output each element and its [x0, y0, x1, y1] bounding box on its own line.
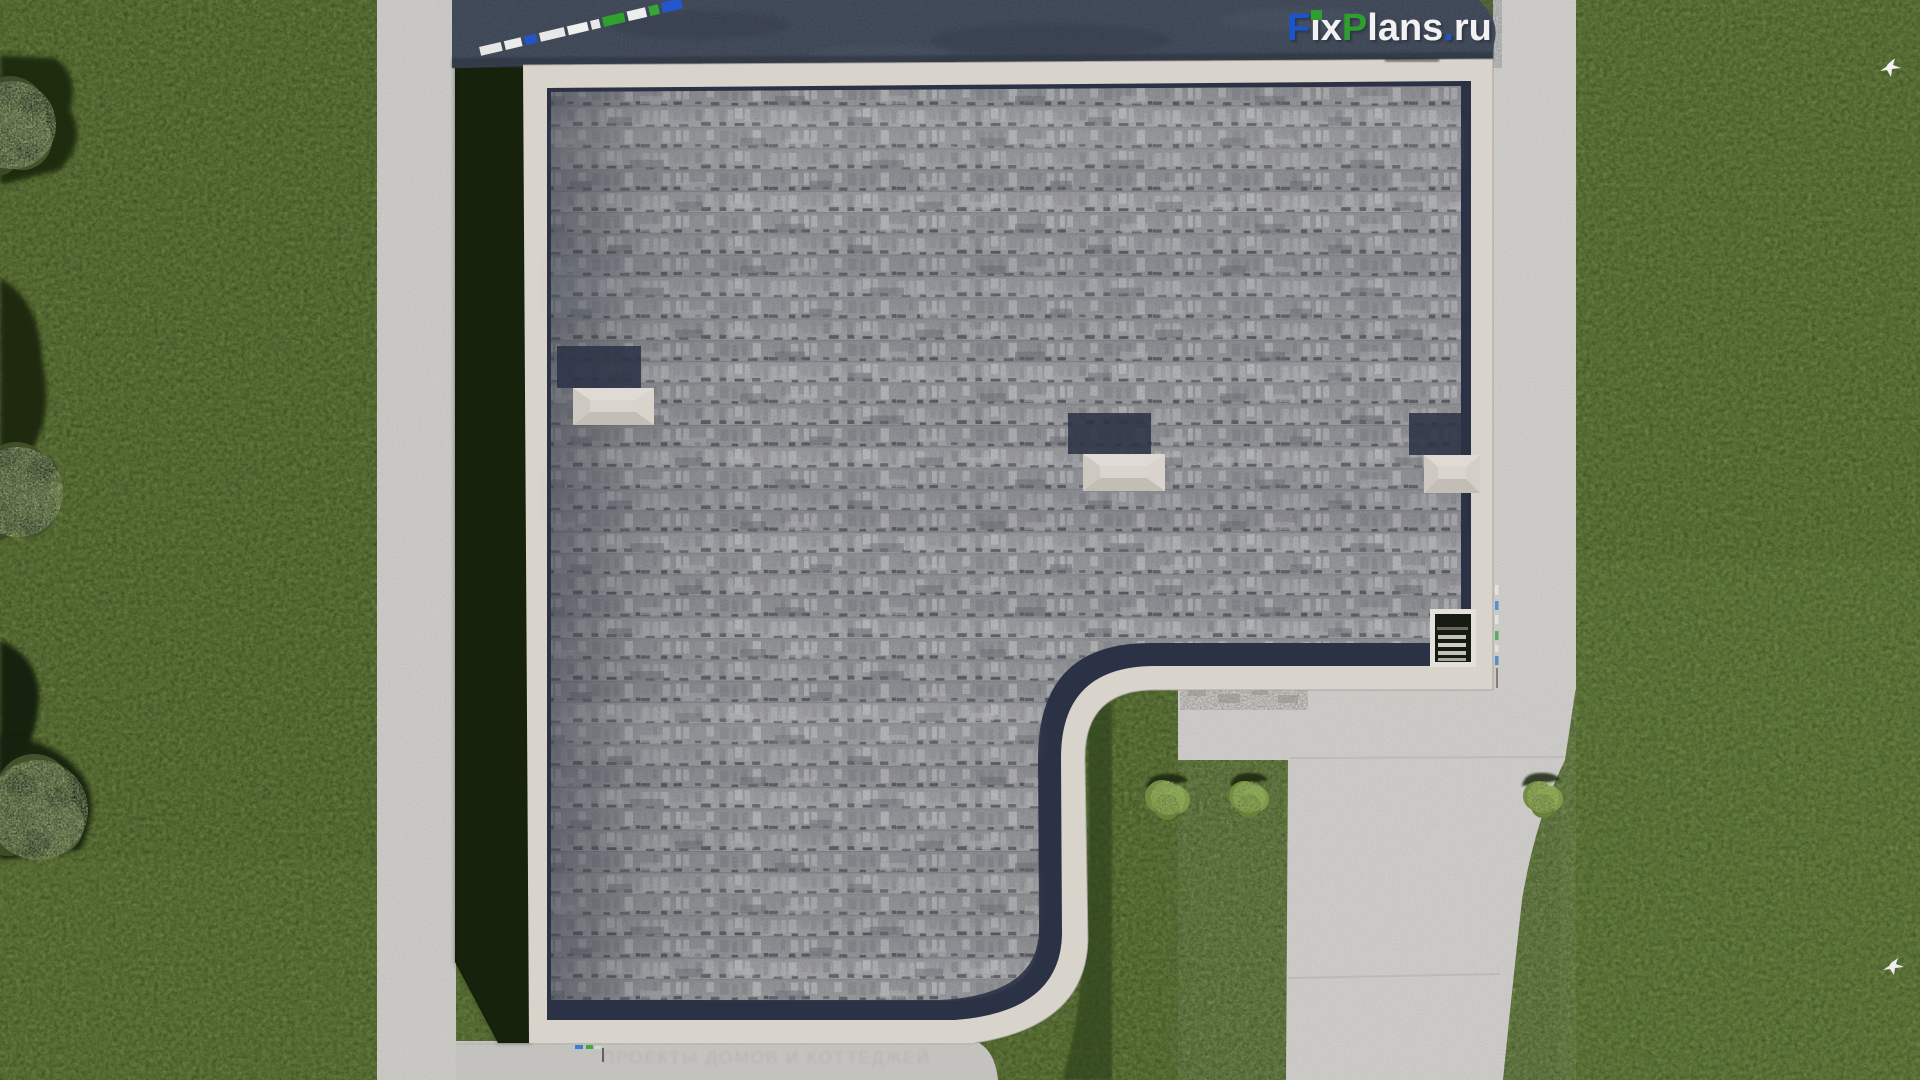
svg-text:ПРОЕКТЫ ДОМОВ И КОТТЕДЖЕЙ: ПРОЕКТЫ ДОМОВ И КОТТЕДЖЕЙ — [602, 1048, 931, 1067]
